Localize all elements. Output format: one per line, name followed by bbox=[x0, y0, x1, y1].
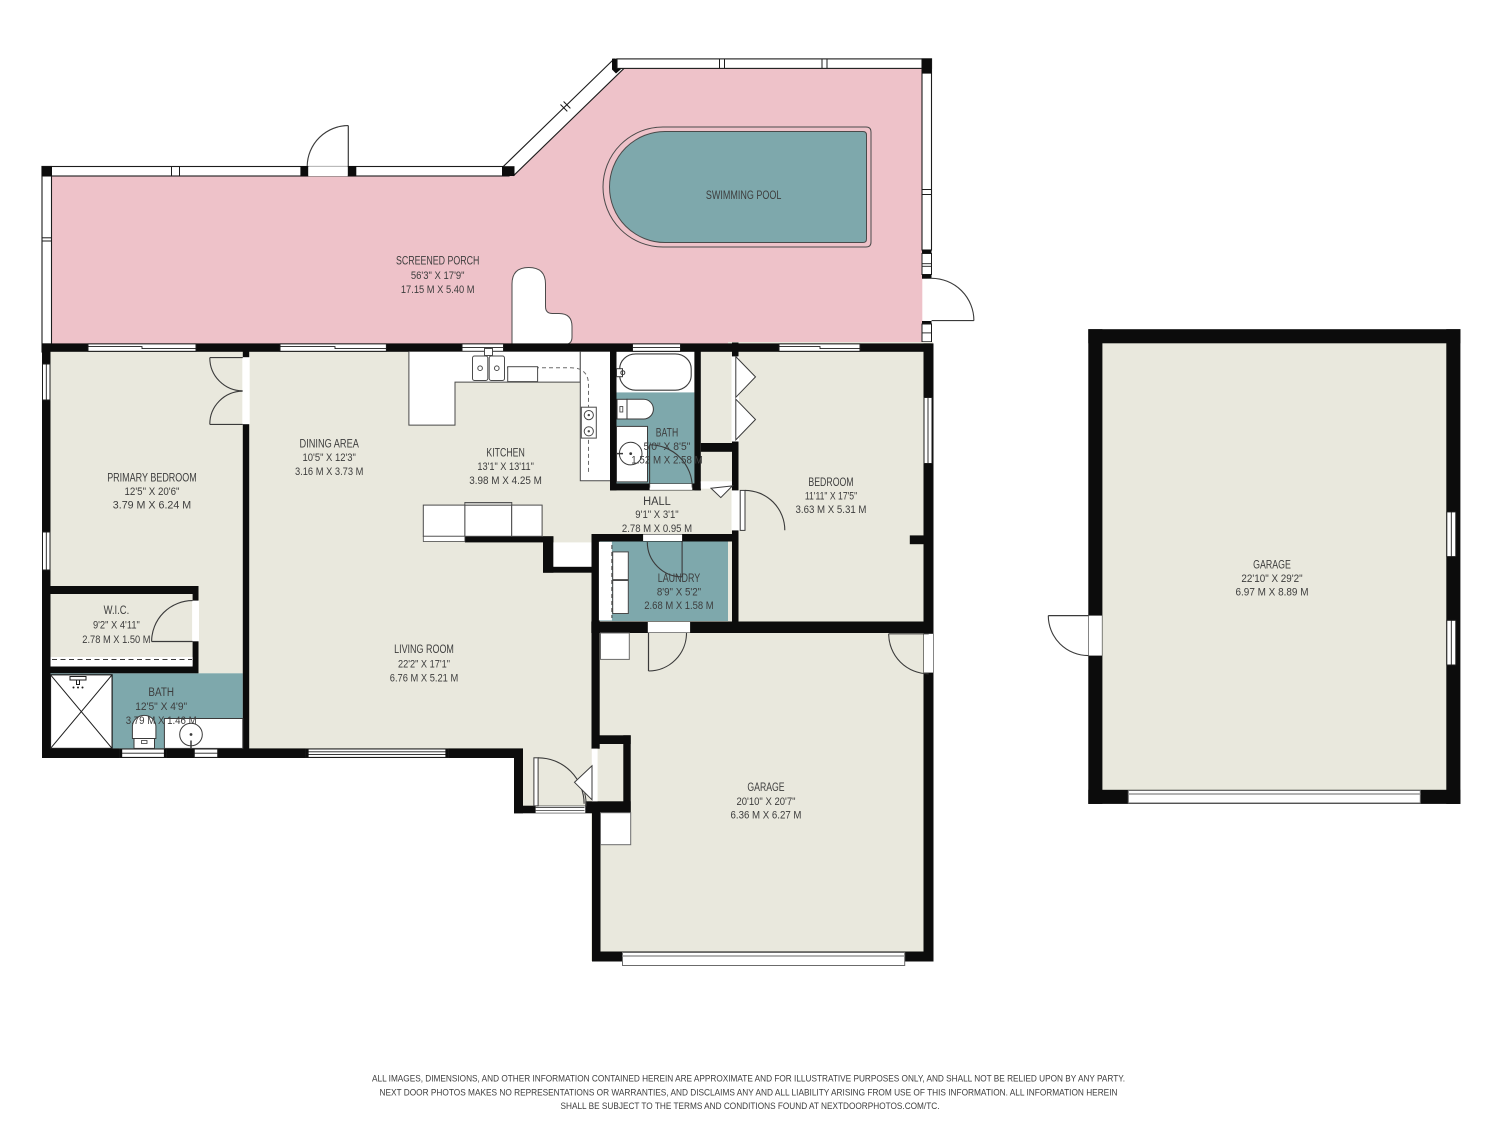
svg-text:BEDROOM: BEDROOM bbox=[808, 477, 853, 489]
svg-text:13'1" X 13'11": 13'1" X 13'11" bbox=[477, 461, 534, 473]
svg-text:GARAGE: GARAGE bbox=[747, 782, 784, 794]
svg-text:PRIMARY BEDROOM: PRIMARY BEDROOM bbox=[107, 472, 197, 484]
svg-text:KITCHEN: KITCHEN bbox=[486, 447, 524, 459]
svg-text:3.79 M X 1.46 M: 3.79 M X 1.46 M bbox=[126, 715, 197, 727]
svg-text:3.63 M X 5.31 M: 3.63 M X 5.31 M bbox=[796, 504, 867, 516]
svg-text:6.36 M X 6.27 M: 6.36 M X 6.27 M bbox=[731, 809, 802, 821]
svg-text:17.15 M X 5.40 M: 17.15 M X 5.40 M bbox=[401, 284, 475, 296]
svg-text:12'5" X 20'6": 12'5" X 20'6" bbox=[125, 486, 180, 498]
svg-text:6.76 M X 5.21 M: 6.76 M X 5.21 M bbox=[390, 672, 459, 684]
svg-text:2.68 M X 1.58 M: 2.68 M X 1.58 M bbox=[644, 600, 713, 612]
svg-text:SCREENED PORCH: SCREENED PORCH bbox=[396, 256, 480, 268]
svg-text:3.16 M X 3.73 M: 3.16 M X 3.73 M bbox=[295, 466, 364, 478]
svg-text:LAUNDRY: LAUNDRY bbox=[658, 573, 701, 585]
svg-text:6.97 M X 8.89 M: 6.97 M X 8.89 M bbox=[1236, 587, 1309, 599]
svg-text:SWIMMING POOL: SWIMMING POOL bbox=[706, 190, 782, 202]
svg-text:8'9" X 5'2": 8'9" X 5'2" bbox=[657, 587, 701, 599]
svg-text:22'10" X 29'2": 22'10" X 29'2" bbox=[1241, 573, 1302, 585]
svg-text:56'3" X 17'9": 56'3" X 17'9" bbox=[411, 270, 465, 282]
svg-text:NEXT DOOR PHOTOS MAKES NO REPR: NEXT DOOR PHOTOS MAKES NO REPRESENTATION… bbox=[380, 1087, 1118, 1097]
svg-text:20'10" X 20'7": 20'10" X 20'7" bbox=[736, 796, 795, 808]
svg-text:12'5" X 4'9": 12'5" X 4'9" bbox=[135, 701, 187, 713]
svg-text:2.78 M X 0.95 M: 2.78 M X 0.95 M bbox=[622, 523, 692, 535]
svg-text:11'11" X 17'5": 11'11" X 17'5" bbox=[805, 491, 857, 503]
svg-text:ALL IMAGES, DIMENSIONS, AND OT: ALL IMAGES, DIMENSIONS, AND OTHER INFORM… bbox=[372, 1074, 1125, 1084]
svg-text:5'0" X 8'5": 5'0" X 8'5" bbox=[644, 441, 691, 453]
svg-text:BATH: BATH bbox=[148, 687, 174, 699]
svg-text:LIVING ROOM: LIVING ROOM bbox=[394, 644, 454, 656]
svg-text:DINING AREA: DINING AREA bbox=[300, 438, 360, 450]
svg-text:10'5" X 12'3": 10'5" X 12'3" bbox=[303, 452, 356, 464]
svg-text:HALL: HALL bbox=[643, 496, 671, 508]
svg-text:W.I.C.: W.I.C. bbox=[104, 605, 130, 617]
svg-text:9'2" X 4'11": 9'2" X 4'11" bbox=[93, 620, 140, 632]
svg-text:SHALL BE SUBJECT TO THE TERMS: SHALL BE SUBJECT TO THE TERMS AND CONDIT… bbox=[561, 1101, 940, 1111]
svg-text:GARAGE: GARAGE bbox=[1253, 560, 1291, 572]
svg-text:BATH: BATH bbox=[656, 428, 678, 440]
svg-text:3.98 M X 4.25 M: 3.98 M X 4.25 M bbox=[469, 475, 542, 487]
svg-text:22'2" X 17'1": 22'2" X 17'1" bbox=[398, 658, 450, 670]
svg-text:3.79 M X 6.24 M: 3.79 M X 6.24 M bbox=[113, 500, 191, 512]
svg-text:2.78 M X 1.50 M: 2.78 M X 1.50 M bbox=[82, 634, 150, 646]
svg-text:9'1" X 3'1": 9'1" X 3'1" bbox=[635, 509, 678, 521]
svg-text:1.52 M X 2.58 M: 1.52 M X 2.58 M bbox=[631, 454, 702, 466]
